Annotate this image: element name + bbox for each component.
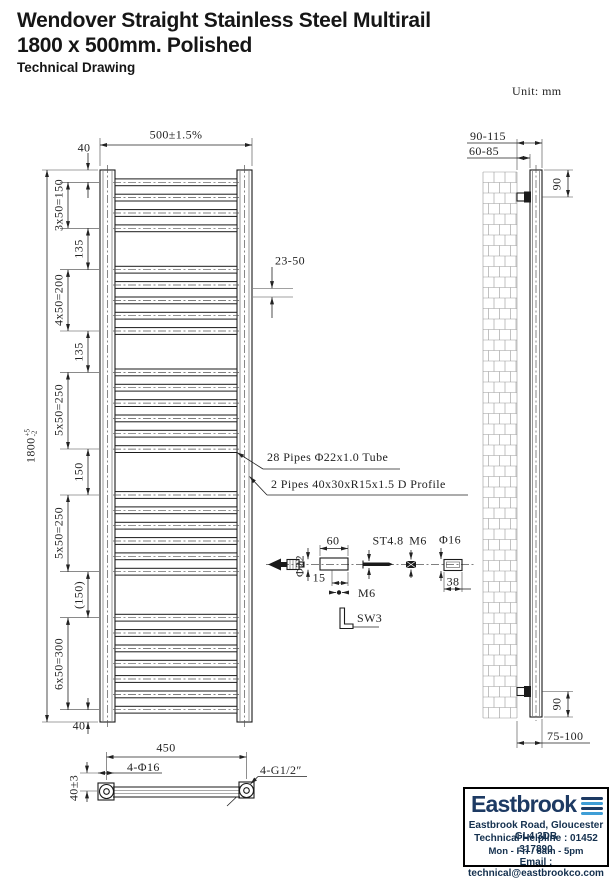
dim-plug-dia: Φ22 bbox=[293, 555, 308, 577]
label-grub-screw: M6 bbox=[358, 586, 375, 601]
eastbrook-logo-icon bbox=[581, 797, 603, 816]
dim-wall-to-back: 90-115 bbox=[470, 129, 506, 144]
dim-sleeve-length: 60 bbox=[327, 534, 340, 549]
dim-height-1800: 1800+5-2 bbox=[24, 429, 39, 463]
subtitle: Technical Drawing bbox=[17, 60, 135, 75]
dim-chain-5: 5x50=250 bbox=[52, 384, 67, 436]
dim-chain-1: 3x50=150 bbox=[52, 179, 67, 231]
dim-chain-7: 5x50=250 bbox=[52, 507, 67, 559]
tolerance-minus: -2 bbox=[31, 429, 38, 436]
note-pipes: 28 Pipes Φ22x1.0 Tube bbox=[267, 450, 388, 465]
dim-chain-3: 4x50=200 bbox=[52, 274, 67, 326]
label-screw-spec: ST4.8 bbox=[372, 534, 403, 549]
dim-bottom-clearance: 75-100 bbox=[547, 729, 583, 744]
label-thread-spec: 4-G1/2″ bbox=[260, 763, 302, 778]
dim-top-bracket: 90 bbox=[550, 178, 565, 191]
dim-bottom-offset-40: 40 bbox=[73, 719, 86, 734]
dim-pipe-gap: 23-50 bbox=[275, 254, 305, 269]
dim-cap-length: 38 bbox=[447, 575, 460, 590]
dim-cap-dia: Φ16 bbox=[439, 533, 461, 548]
technical-drawing-canvas bbox=[0, 0, 614, 875]
front-view-linework bbox=[42, 138, 468, 734]
support-email: Email : technical@eastbrookco.com bbox=[465, 857, 607, 879]
unit-label: Unit: mm bbox=[512, 84, 562, 99]
title-line-2: 1800 x 500mm. Polished bbox=[17, 33, 431, 58]
page-title: Wendover Straight Stainless Steel Multir… bbox=[17, 8, 431, 58]
dim-chain-2: 135 bbox=[72, 239, 87, 258]
dim-hole-centres: 450 bbox=[156, 741, 175, 756]
dim-wall-to-front: 60-85 bbox=[469, 144, 499, 159]
manufacturer-info-card: Eastbrook Eastbrook Road, Gloucester GL4… bbox=[463, 787, 609, 867]
dim-bottom-bracket: 90 bbox=[550, 698, 565, 711]
bottom-view-linework bbox=[80, 752, 307, 806]
dim-offset: 40±3 bbox=[67, 775, 82, 801]
dim-chain-9: 6x50=300 bbox=[52, 638, 67, 690]
dim-chain-4: 135 bbox=[72, 342, 87, 361]
wall-brick-pattern bbox=[483, 172, 517, 718]
dim-width-500: 500±1.5% bbox=[150, 128, 203, 143]
label-holes-spec: 4-Φ16 bbox=[127, 760, 160, 775]
dim-sleeve-inset: 15 bbox=[313, 571, 326, 586]
title-line-1: Wendover Straight Stainless Steel Multir… bbox=[17, 8, 431, 33]
dim-chain-8: (150) bbox=[72, 581, 87, 609]
brand-logo-text: Eastbrook bbox=[471, 791, 576, 818]
dim-chain-6: 150 bbox=[72, 462, 87, 481]
dim-top-offset-40: 40 bbox=[78, 141, 91, 156]
label-nut-spec: M6 bbox=[409, 534, 426, 549]
pipe-array bbox=[113, 179, 239, 713]
note-profile: 2 Pipes 40x30xR15x1.5 D Profile bbox=[271, 477, 446, 492]
helpline-hours: Mon - Fri / 8am - 5pm bbox=[465, 846, 607, 857]
side-view-linework bbox=[467, 139, 590, 748]
label-allen-key: SW3 bbox=[357, 611, 382, 626]
